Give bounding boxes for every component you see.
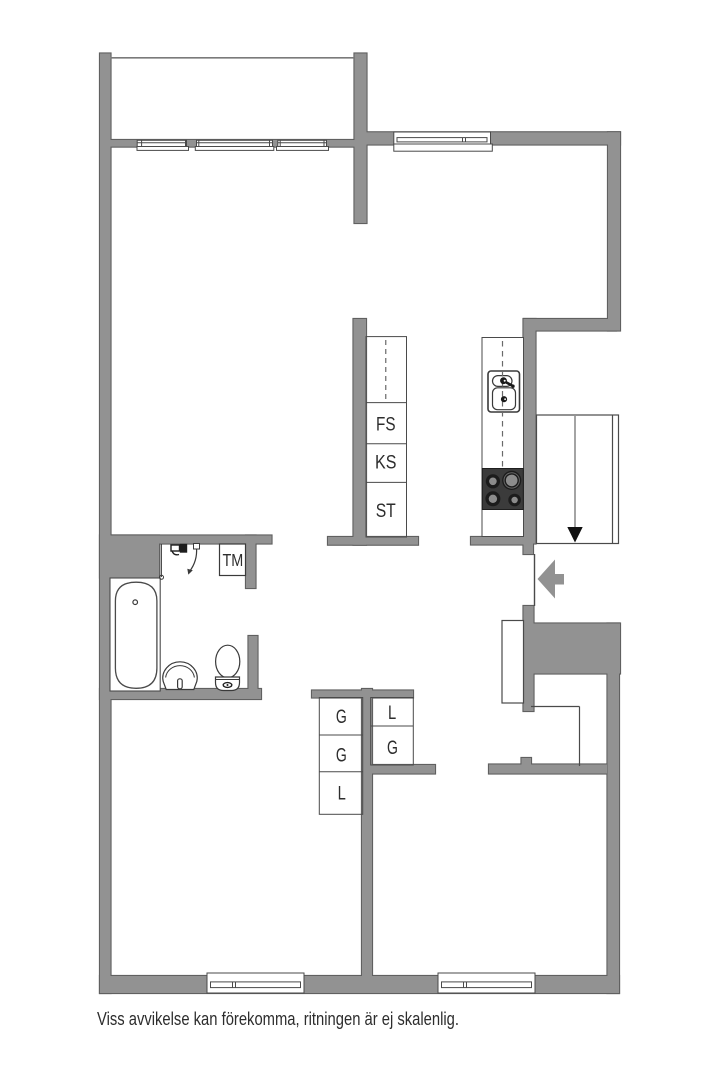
svg-text:G: G (387, 738, 398, 759)
svg-text:Viss avvikelse kan förekomma,: Viss avvikelse kan förekomma, ritningen … (97, 1008, 459, 1029)
svg-text:L: L (388, 703, 396, 724)
svg-text:KS: KS (375, 453, 396, 474)
svg-text:G: G (336, 746, 347, 767)
svg-text:TM: TM (223, 550, 244, 570)
svg-text:G: G (336, 707, 347, 728)
svg-text:FS: FS (376, 415, 396, 436)
svg-text:L: L (338, 784, 346, 805)
svg-text:ST: ST (376, 501, 396, 522)
